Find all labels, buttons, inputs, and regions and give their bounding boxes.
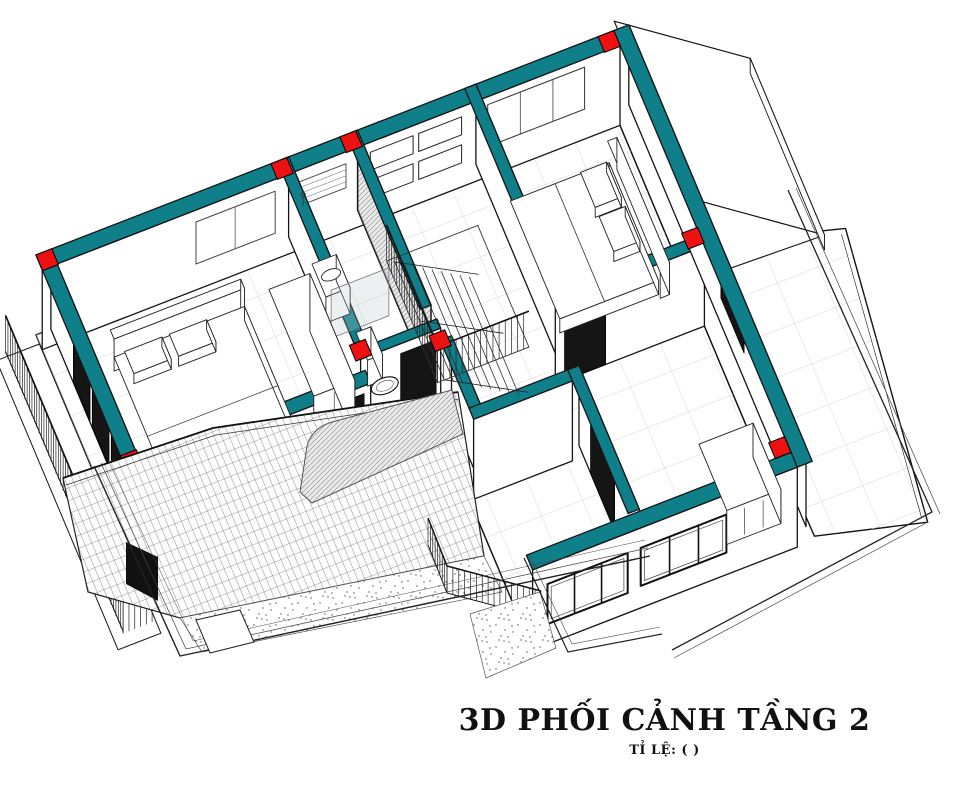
drawing-title: 3D PHỐI CẢNH TẦNG 2 xyxy=(402,704,927,737)
title-block: 3D PHỐI CẢNH TẦNG 2 TỈ LỆ: ( ) xyxy=(402,704,927,758)
floor-plan-3d-perspective-view xyxy=(0,0,964,702)
drawing-scale-label: TỈ LỆ: ( ) xyxy=(402,743,927,758)
drawing-sheet: { "drawing": { "title": "3D PHỐI CẢNH TẦ… xyxy=(0,0,964,790)
